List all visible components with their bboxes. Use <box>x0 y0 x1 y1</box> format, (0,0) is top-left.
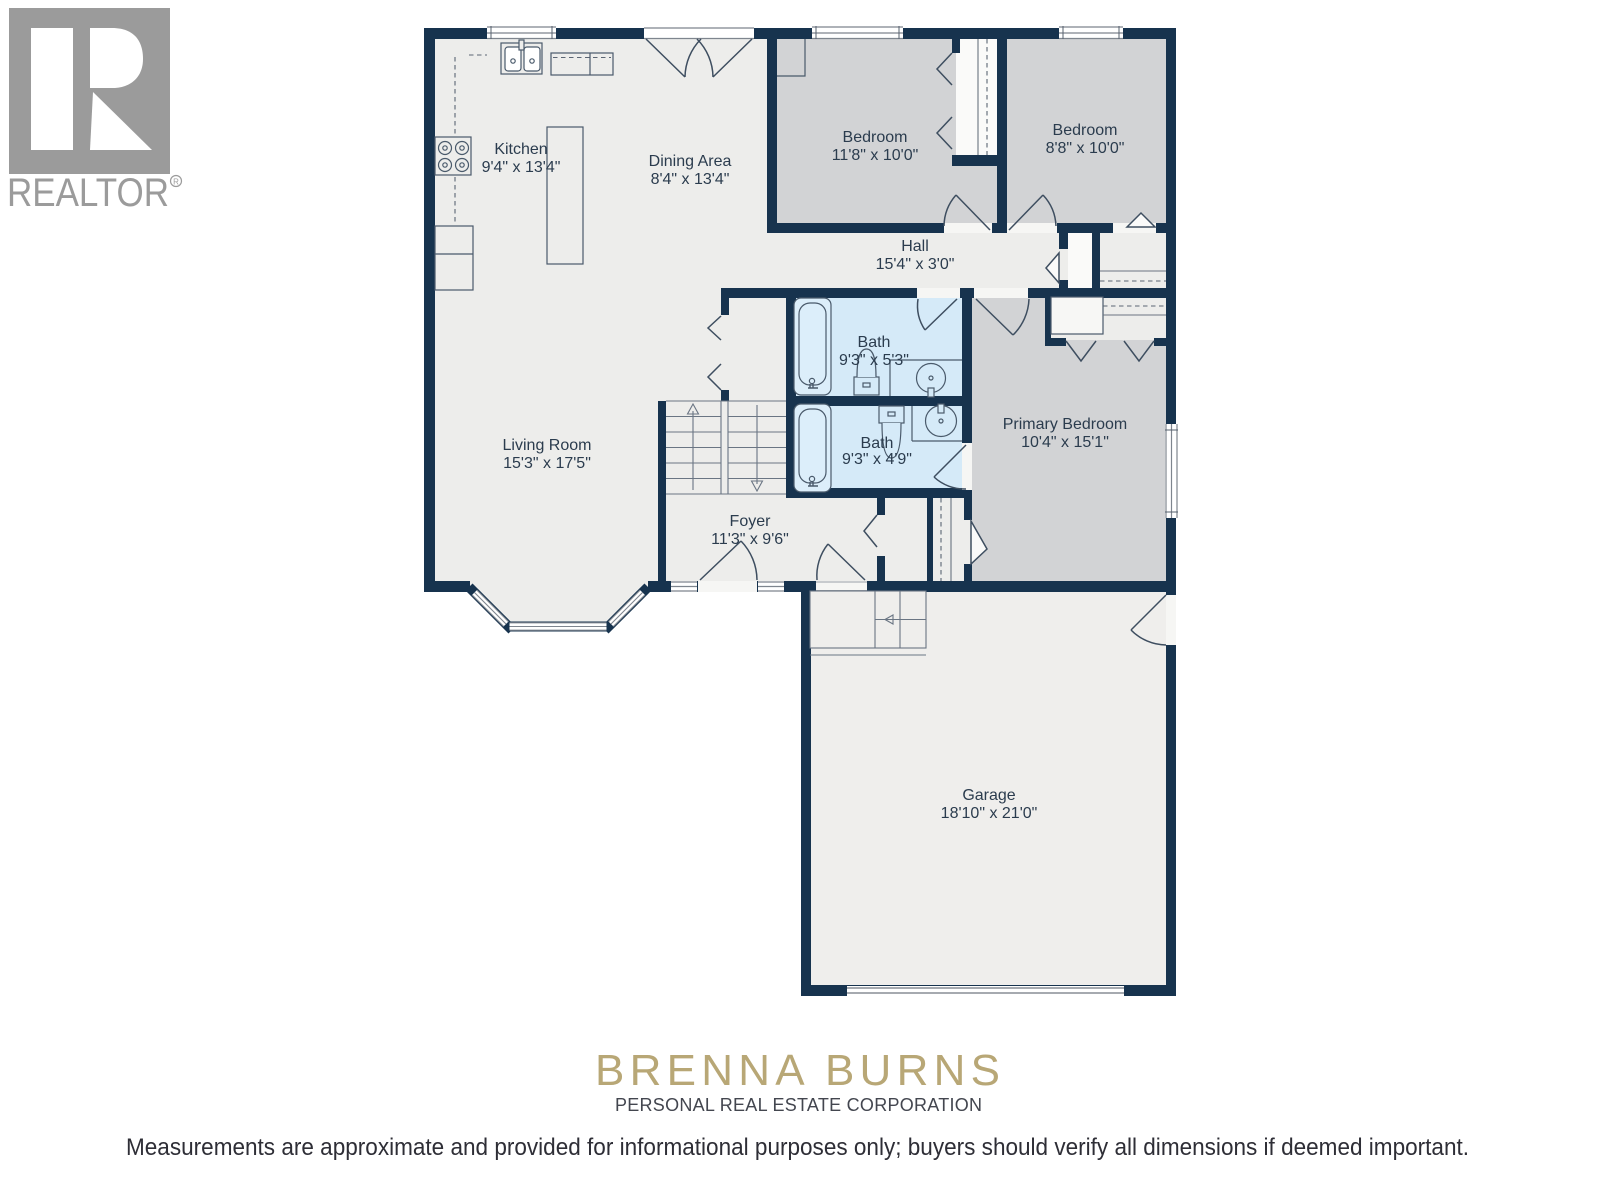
svg-text:Primary Bedroom: Primary Bedroom <box>1003 416 1127 433</box>
svg-text:R: R <box>173 178 179 187</box>
svg-text:15'3" x 17'5": 15'3" x 17'5" <box>503 455 591 472</box>
svg-text:Garage: Garage <box>962 787 1015 804</box>
svg-text:10'4" x 15'1": 10'4" x 15'1" <box>1021 434 1109 451</box>
svg-text:BRENNA BURNS: BRENNA BURNS <box>595 1046 1000 1095</box>
svg-text:REALTOR: REALTOR <box>7 171 169 215</box>
svg-text:Living Room: Living Room <box>503 437 592 454</box>
svg-text:Foyer: Foyer <box>730 513 772 530</box>
svg-text:Hall: Hall <box>901 238 929 255</box>
svg-text:9'3" x 5'3": 9'3" x 5'3" <box>839 352 909 369</box>
svg-text:Bath: Bath <box>858 334 891 351</box>
svg-text:8'8" x 10'0": 8'8" x 10'0" <box>1046 140 1125 157</box>
svg-text:Kitchen: Kitchen <box>494 141 547 158</box>
svg-text:15'4" x 3'0": 15'4" x 3'0" <box>876 256 955 273</box>
svg-text:11'3" x 9'6": 11'3" x 9'6" <box>711 531 789 548</box>
svg-text:Bath: Bath <box>861 435 894 452</box>
svg-text:8'4" x 13'4": 8'4" x 13'4" <box>651 171 730 188</box>
svg-text:PERSONAL REAL ESTATE CORPORATI: PERSONAL REAL ESTATE CORPORATION <box>615 1095 982 1115</box>
svg-text:9'4" x 13'4": 9'4" x 13'4" <box>482 159 561 176</box>
svg-text:Bedroom: Bedroom <box>843 129 908 146</box>
svg-text:Measurements are approximate a: Measurements are approximate and provide… <box>126 1134 1469 1161</box>
svg-text:Bedroom: Bedroom <box>1053 122 1118 139</box>
svg-text:11'8" x 10'0": 11'8" x 10'0" <box>832 147 919 164</box>
svg-text:9'3" x 4'9": 9'3" x 4'9" <box>842 451 912 468</box>
svg-text:Dining Area: Dining Area <box>649 153 732 170</box>
svg-text:18'10" x 21'0": 18'10" x 21'0" <box>941 805 1038 822</box>
